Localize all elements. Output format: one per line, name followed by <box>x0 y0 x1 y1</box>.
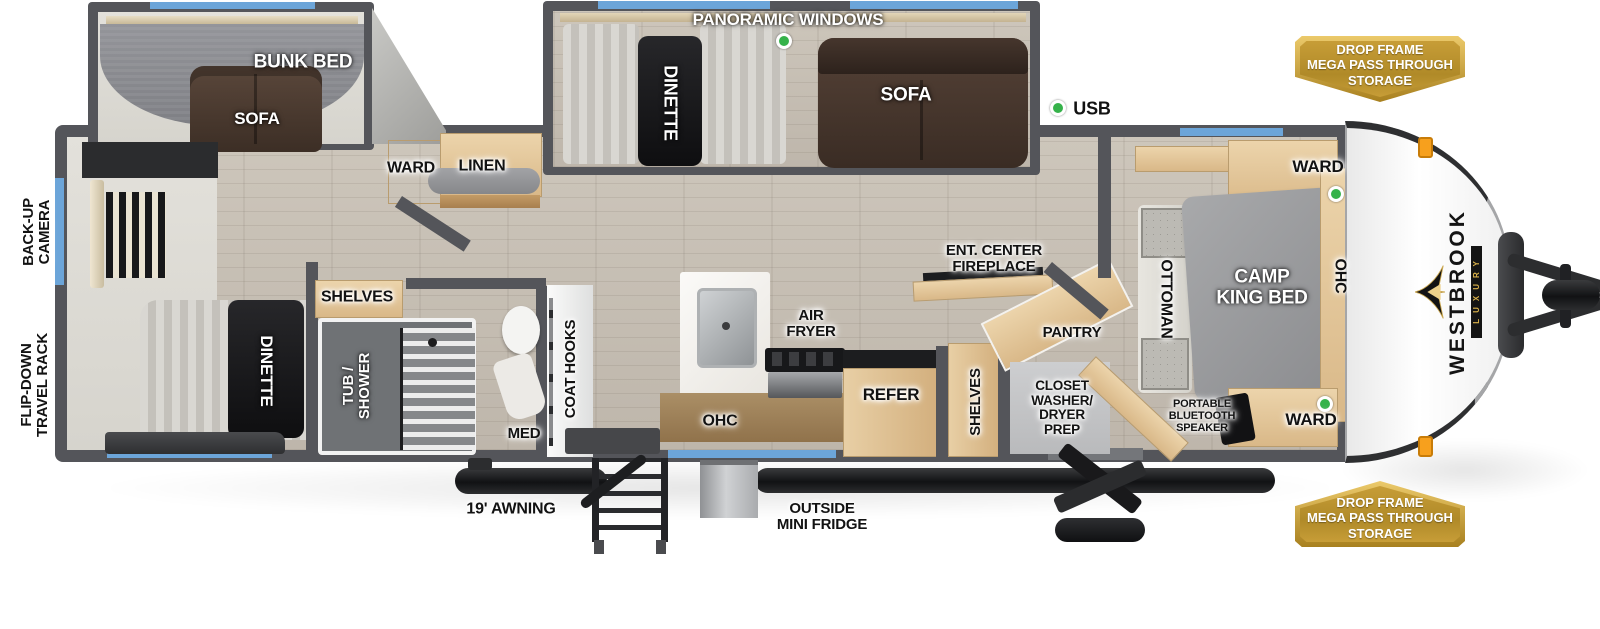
dinette-bench-left <box>563 24 639 164</box>
awning-bracket <box>468 458 492 470</box>
label-pantry: PANTRY <box>1043 325 1102 341</box>
label-usb: USB <box>1073 99 1110 118</box>
window-rear-side <box>55 178 64 285</box>
bedroom-divider-upper <box>1098 133 1111 278</box>
awning-tube-right <box>755 468 1275 493</box>
coat-hooks-rail <box>549 298 553 446</box>
shower-head <box>428 338 437 347</box>
linen-cabinet-edge <box>440 195 540 208</box>
mini-fridge-box <box>700 460 758 518</box>
label-ohc-kitchen: OHC <box>703 412 738 429</box>
label-ent-center: ENT. CENTER FIREPLACE <box>946 243 1042 275</box>
step-foot-right <box>656 540 666 554</box>
hitch-jack <box>1498 232 1524 358</box>
range-oven <box>768 372 842 398</box>
dinette-bench-right <box>700 24 786 164</box>
toilet-bowl <box>502 306 540 354</box>
label-ward-linen: WARD <box>387 159 435 176</box>
sink-drain <box>722 322 730 330</box>
entry-mat-bath <box>565 428 660 454</box>
label-closet-wd: CLOSET WASHER/ DRYER PREP <box>1031 379 1093 437</box>
label-air-fryer: AIR FRYER <box>786 308 835 340</box>
kitchen-lower-counter <box>660 393 845 442</box>
shower-door <box>400 328 475 450</box>
hitch-coupler <box>1542 280 1600 310</box>
bath-top-wall <box>406 278 546 289</box>
living-sofa-back <box>818 38 1028 74</box>
storage-badge-bottom-text: DROP FRAME MEGA PASS THROUGH STORAGE <box>1295 495 1465 541</box>
kitchen-divider-wall <box>936 346 948 458</box>
green-indicator-panoramic <box>776 33 792 49</box>
travel-rack-slats <box>106 192 166 278</box>
label-ohc-bedroom: OHC <box>1331 259 1348 294</box>
label-rear-dinette: DINETTE <box>257 335 275 406</box>
ottoman-cushion-bottom <box>1141 338 1189 390</box>
brand-triangle-icon <box>1415 265 1445 319</box>
label-bunk-sofa: SOFA <box>234 110 280 128</box>
entry-step-base <box>1055 518 1145 542</box>
green-indicator-usb <box>1050 100 1066 116</box>
brand-name: WESTBROOK <box>1446 209 1470 375</box>
label-backup-camera: BACK-UP CAMERA <box>21 198 53 266</box>
awning-tube-left <box>455 468 607 494</box>
brand-tagline: LUXURY <box>1471 246 1482 338</box>
refrigerator <box>843 368 942 457</box>
label-mini-fridge: OUTSIDE MINI FRIDGE <box>777 501 867 533</box>
storage-badge-top-text: DROP FRAME MEGA PASS THROUGH STORAGE <box>1295 42 1465 88</box>
label-linen: LINEN <box>458 157 505 174</box>
label-shelves-bath: SHELVES <box>321 288 393 305</box>
label-bunk-bed: BUNK BED <box>254 53 353 74</box>
floorplan-canvas: WESTBROOK LUXURY DROP FRAME MEGA PASS TH… <box>0 0 1600 629</box>
label-awning: 19' AWNING <box>466 500 555 517</box>
marker-light-top <box>1418 137 1433 158</box>
step-foot-left <box>594 540 604 554</box>
refrigerator-top <box>843 350 940 368</box>
travel-rack-frame <box>90 180 104 288</box>
brand-logo: WESTBROOK LUXURY <box>1416 187 1480 397</box>
window-bunk-top <box>150 2 315 9</box>
label-coat-hooks: COAT HOOKS <box>563 320 579 419</box>
bunk-valance <box>106 16 358 24</box>
label-tub-shower: TUB / SHOWER <box>341 353 373 419</box>
label-living-dinette: DINETTE <box>660 65 679 141</box>
label-refer: REFER <box>863 386 920 404</box>
window-bedroom-top <box>1180 128 1283 136</box>
label-ward-top: WARD <box>1292 158 1343 176</box>
label-ward-bottom: WARD <box>1285 411 1336 429</box>
window-living-left <box>598 1 770 9</box>
rear-bench <box>105 432 285 454</box>
label-ottoman: OTTOMAN <box>1157 259 1174 338</box>
label-speaker: PORTABLE BLUETOOTH SPEAKER <box>1169 399 1235 435</box>
range-burners <box>772 352 838 366</box>
marker-light-bottom <box>1418 436 1433 457</box>
green-indicator-ward-top <box>1328 186 1344 202</box>
rear-overhead-cabinet <box>82 142 218 178</box>
label-living-sofa: SOFA <box>881 86 932 107</box>
window-living-right <box>850 1 1018 9</box>
label-panoramic-windows: PANORAMIC WINDOWS <box>693 11 884 29</box>
label-shelves-pantry: SHELVES <box>968 368 984 436</box>
label-travel-rack: FLIP-DOWN TRAVEL RACK <box>19 333 51 437</box>
bunk-slideout-side-panel <box>372 8 446 144</box>
label-med: MED <box>508 426 541 442</box>
storage-badge-top: DROP FRAME MEGA PASS THROUGH STORAGE <box>1295 36 1465 102</box>
label-camp-king-bed: CAMP KING BED <box>1216 267 1307 308</box>
window-kitchen-bottom <box>668 450 836 458</box>
